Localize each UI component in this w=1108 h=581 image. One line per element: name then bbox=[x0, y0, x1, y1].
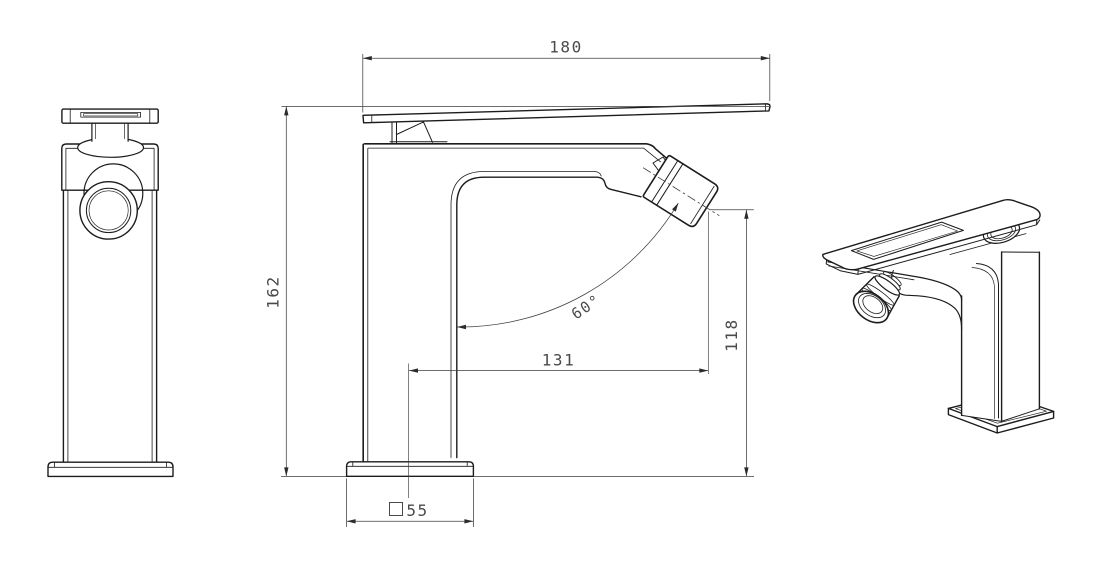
arrowhead-icon bbox=[744, 210, 748, 219]
dim-swivel-angle-label: 60° bbox=[568, 291, 604, 324]
side-handle-cam bbox=[390, 122, 447, 142]
side-aerator-head bbox=[643, 156, 717, 227]
arrowhead-icon bbox=[363, 56, 372, 60]
persp-arm-bottom-curve bbox=[894, 283, 962, 329]
technical-drawing-canvas: 180 162 131 118 60° bbox=[0, 0, 1108, 581]
persp-column-side-fill bbox=[1002, 250, 1040, 421]
swivel-arc-arrow-left-icon bbox=[457, 325, 466, 329]
arrowhead-icon bbox=[409, 368, 418, 372]
dim-handle-length-label: 180 bbox=[549, 38, 582, 57]
side-arch-profile bbox=[457, 177, 641, 457]
persp-arm-front-line bbox=[829, 266, 914, 280]
dim-overall-height: 162 bbox=[264, 106, 770, 476]
side-handle-stem bbox=[392, 122, 397, 144]
perspective-view bbox=[823, 200, 1054, 433]
dim-spout-reach: 131 bbox=[409, 212, 709, 499]
side-view bbox=[281, 104, 770, 477]
arrowhead-icon bbox=[464, 519, 473, 523]
dim-base-square-label: 55 bbox=[406, 501, 428, 520]
dim-spout-reach-label: 131 bbox=[542, 351, 575, 370]
dim-overall-height-label: 162 bbox=[264, 275, 283, 308]
bidet-faucet-drawing: 180 162 131 118 60° bbox=[0, 0, 1108, 581]
front-spout-face bbox=[80, 182, 137, 239]
dim-handle-length: 180 bbox=[363, 38, 770, 113]
dim-outlet-height-label: 118 bbox=[722, 318, 741, 351]
arrowhead-icon bbox=[347, 519, 356, 523]
front-handle-dome bbox=[78, 138, 144, 157]
arrowhead-icon bbox=[284, 467, 288, 476]
front-base-plate bbox=[48, 462, 173, 476]
side-body-top-edge bbox=[365, 144, 667, 158]
front-stem-fill bbox=[92, 123, 128, 141]
persp-column-front-fill bbox=[962, 266, 1002, 421]
side-body-top-inner bbox=[368, 148, 661, 162]
arrowhead-icon bbox=[284, 106, 288, 115]
square-symbol-icon bbox=[390, 503, 403, 516]
arrowhead-icon bbox=[699, 368, 708, 372]
arrowhead-icon bbox=[744, 467, 748, 476]
dim-outlet-height: 118 bbox=[710, 210, 754, 477]
dim-base-square: 55 bbox=[347, 479, 474, 528]
side-base-plate bbox=[347, 462, 474, 477]
front-view bbox=[48, 109, 173, 476]
arrowhead-icon bbox=[761, 56, 770, 60]
